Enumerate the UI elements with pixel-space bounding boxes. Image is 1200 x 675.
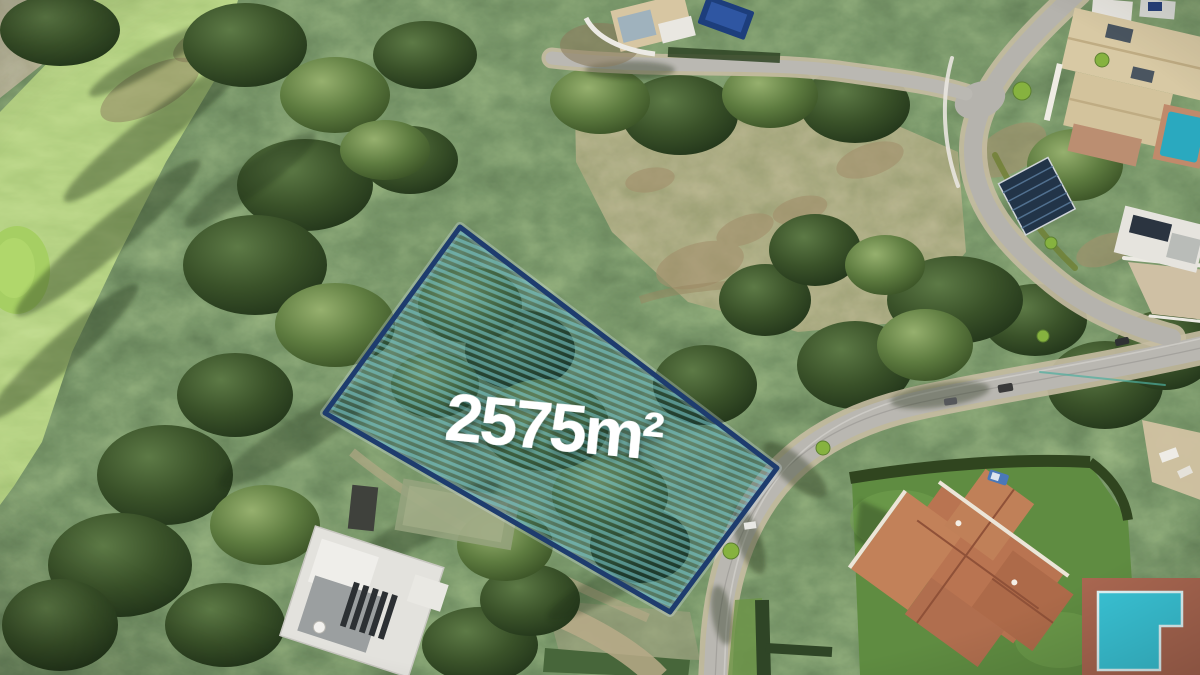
aerial-plot-photo: 2575m² — [0, 0, 1200, 675]
aerial-photo-canvas: 2575m² — [0, 0, 1200, 675]
